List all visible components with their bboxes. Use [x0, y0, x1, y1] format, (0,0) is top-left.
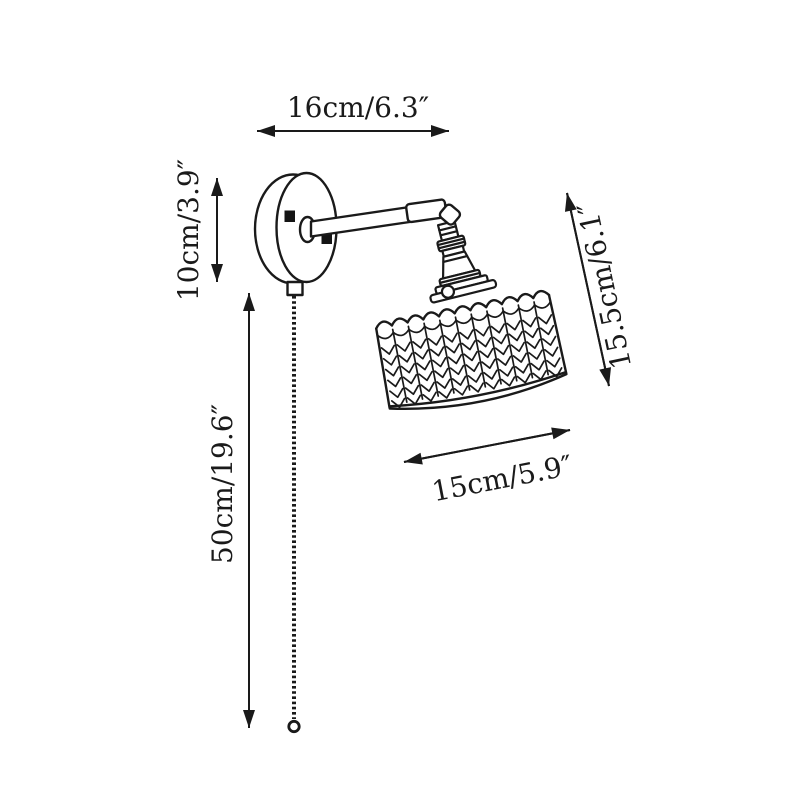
dimension-height: 15.5cm/6.1″	[567, 193, 638, 386]
dimension-chain-label: 50cm/19.6″	[206, 404, 239, 564]
dimension-depth-label: 16cm/6.3″	[287, 91, 429, 124]
mounting-screw	[285, 211, 296, 223]
lamp-socket	[414, 215, 497, 303]
chain-connector	[288, 282, 303, 295]
dimension-chain: 50cm/19.6″	[206, 293, 249, 728]
dimension-diagram: 16cm/6.3″ 10cm/3.9″ 50cm/19.6″ 15.5cm/6.…	[0, 0, 800, 800]
dimension-depth: 16cm/6.3″	[257, 91, 449, 131]
dimension-shade: 15cm/5.9″	[404, 430, 575, 508]
swing-arm	[255, 173, 462, 732]
dimension-shade-label: 15cm/5.9″	[429, 449, 575, 509]
dimension-plate-label: 10cm/3.9″	[172, 159, 205, 301]
dimension-plate: 10cm/3.9″	[172, 159, 217, 301]
dimension-diagram-canvas: 16cm/6.3″ 10cm/3.9″ 50cm/19.6″ 15.5cm/6.…	[0, 0, 800, 800]
pull-chain-ring[interactable]	[289, 721, 299, 731]
dimension-height-label: 15.5cm/6.1″	[571, 200, 638, 372]
drum-shade	[373, 289, 568, 419]
